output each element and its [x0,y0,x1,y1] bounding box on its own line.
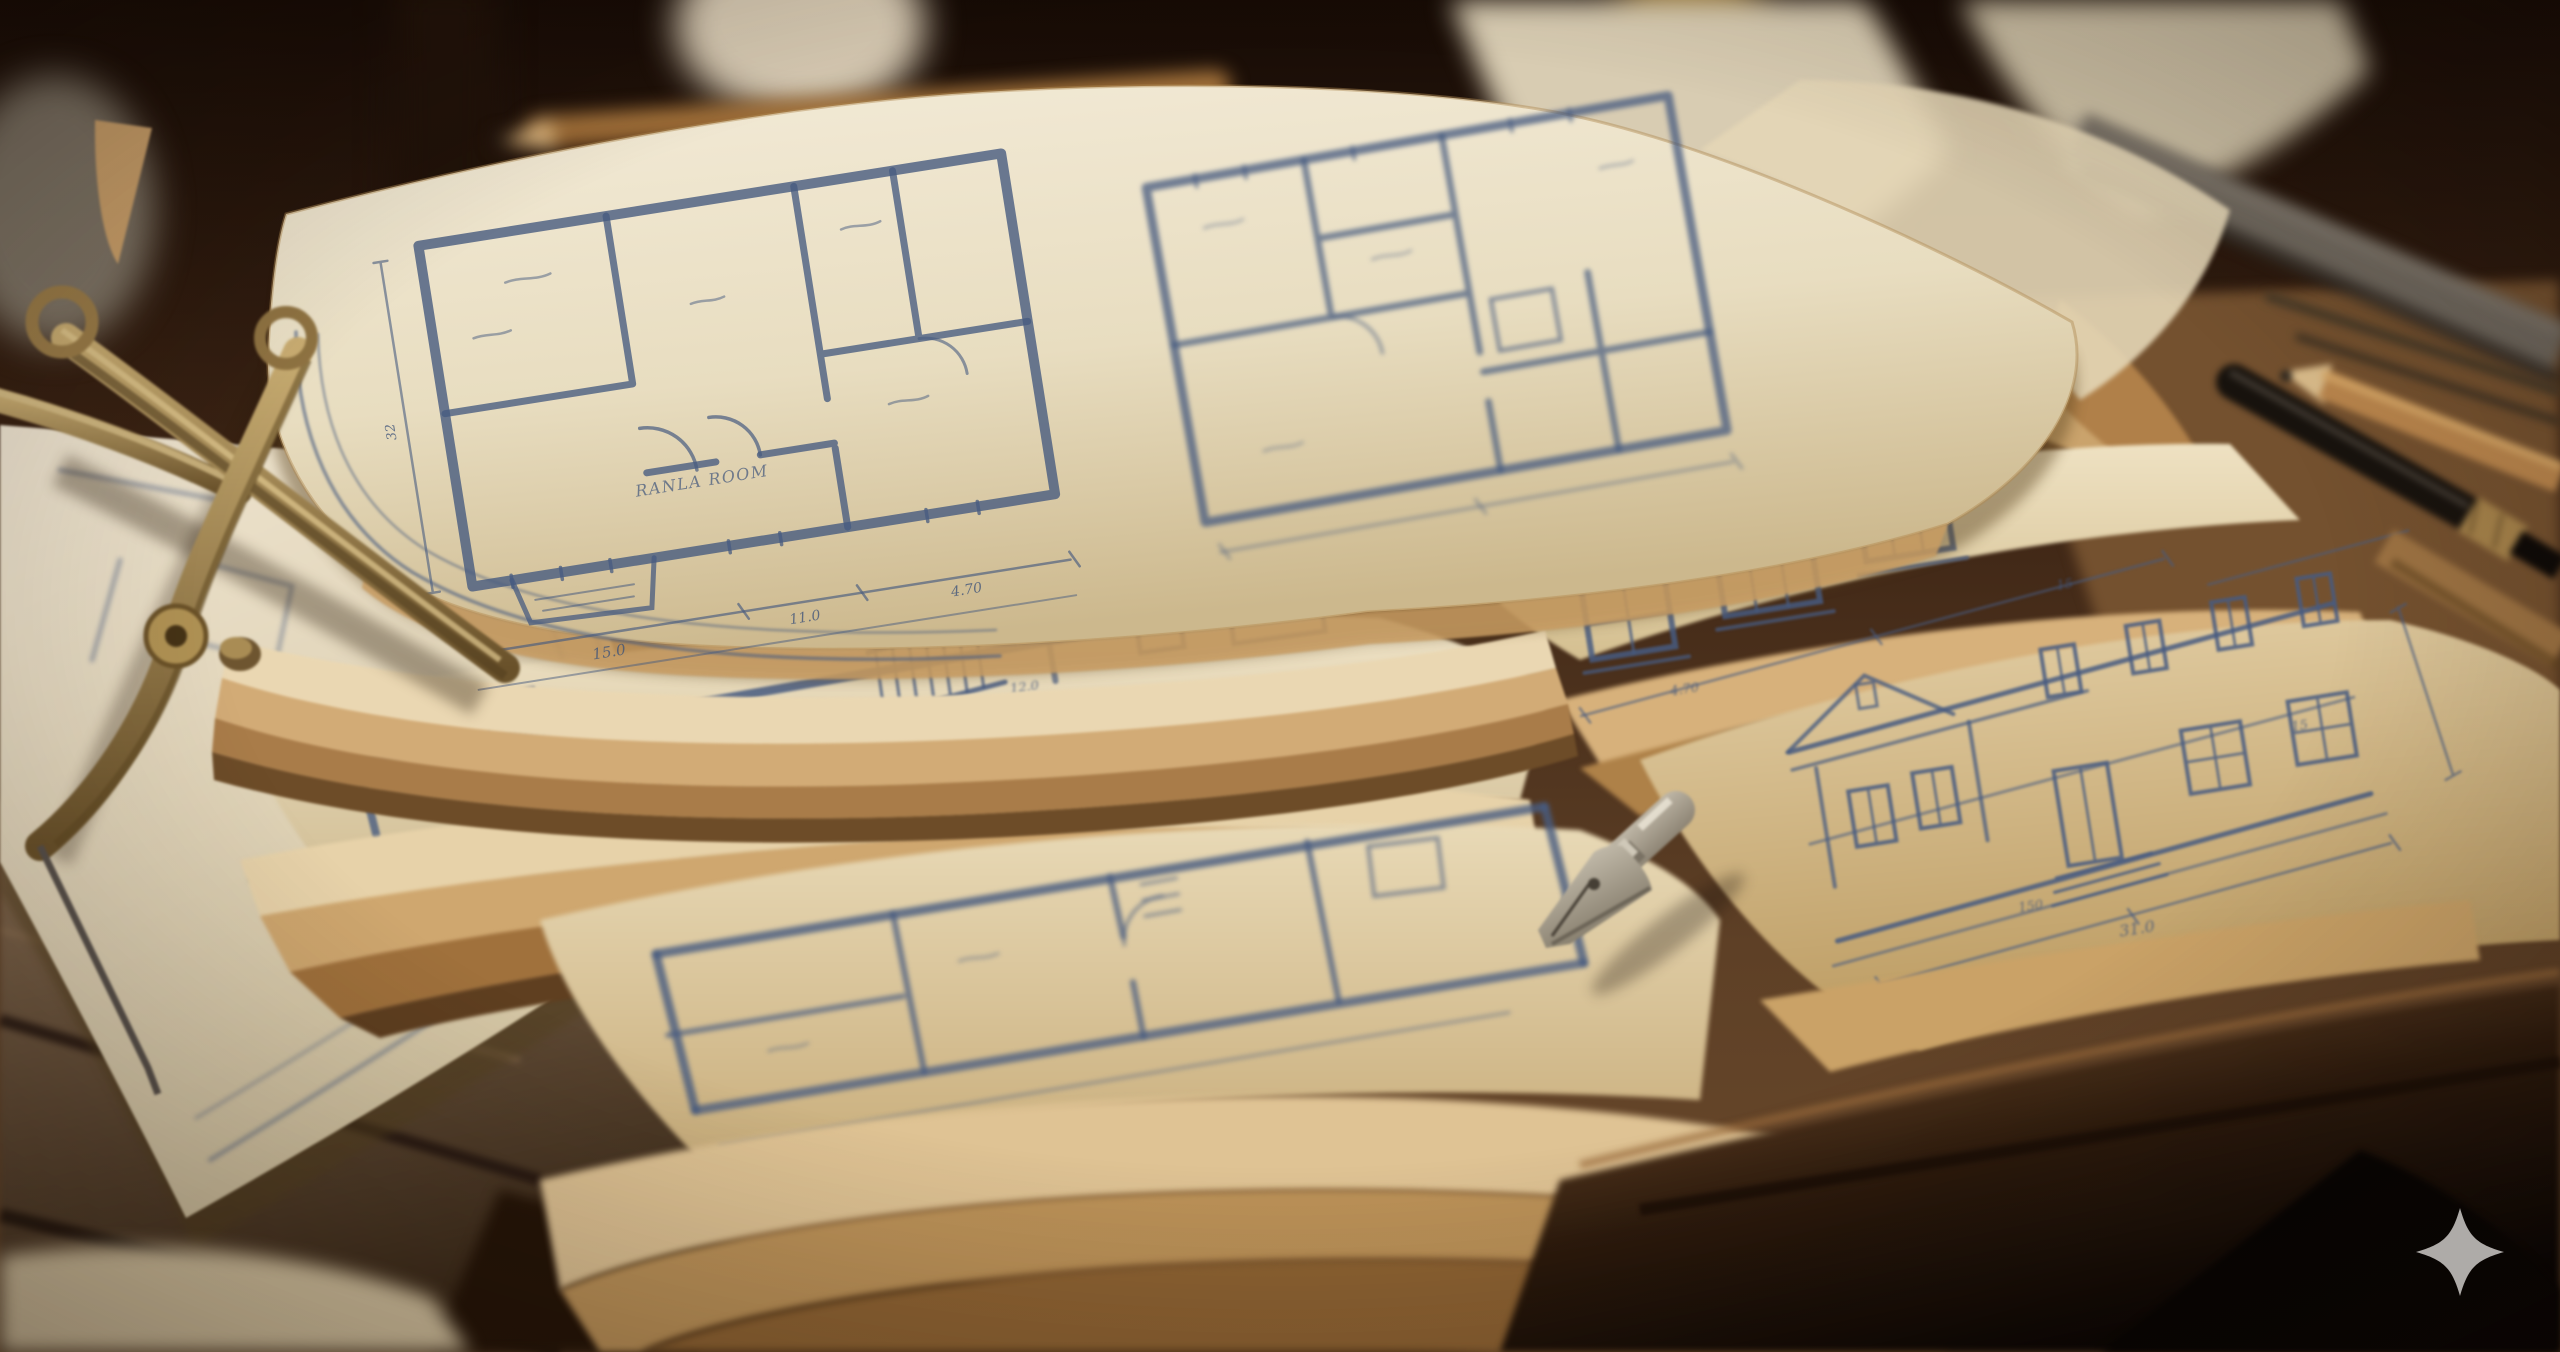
blueprints-photo: PLANS ROOM A. A. BROWN 12.0 [0,0,2560,1352]
vignette-overlay [0,0,2560,1352]
photo-scene: PLANS ROOM A. A. BROWN 12.0 [0,0,2560,1352]
